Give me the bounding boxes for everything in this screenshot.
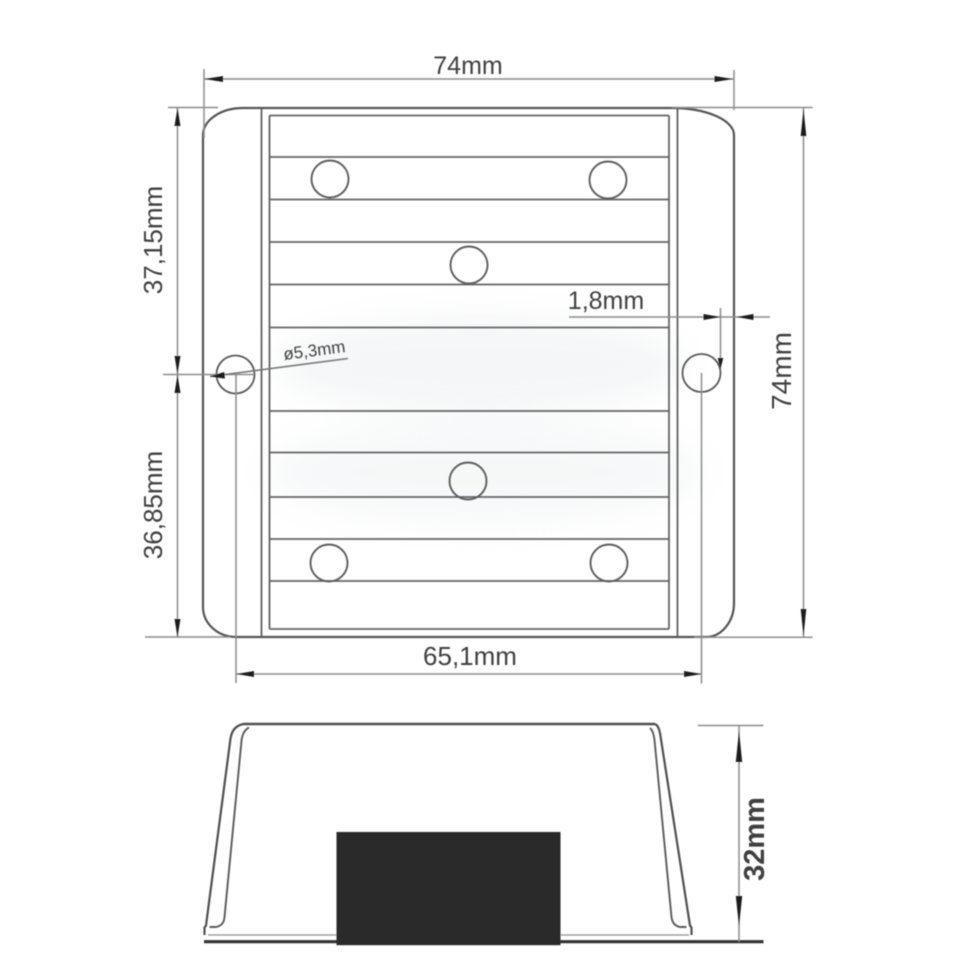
svg-text:36,85mm: 36,85mm — [138, 451, 168, 559]
svg-text:65,1mm: 65,1mm — [423, 641, 517, 671]
svg-text:74mm: 74mm — [433, 52, 502, 80]
svg-text:32mm: 32mm — [739, 797, 771, 881]
svg-text:1,8mm: 1,8mm — [568, 287, 644, 315]
svg-text:37,15mm: 37,15mm — [138, 186, 168, 294]
svg-text:74mm: 74mm — [766, 332, 797, 410]
